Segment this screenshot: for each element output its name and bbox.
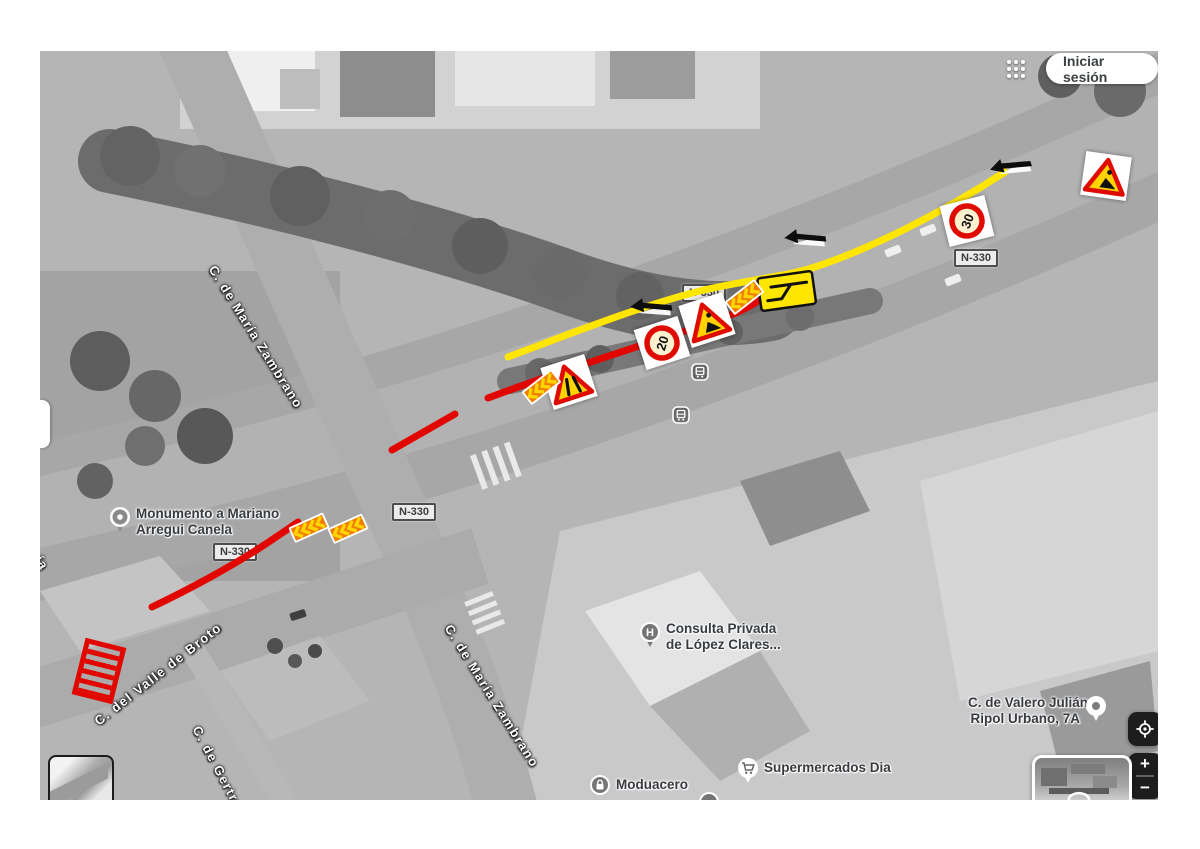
road-badge-n330-1: N-330: [954, 249, 998, 267]
poi-label-line: Consulta Privada: [666, 621, 781, 637]
poi-label-line: Ripol Urbano, 7A: [968, 711, 1080, 727]
poi-consulta-privada[interactable]: H Consulta Privadade López Clares...: [638, 621, 781, 653]
road-badge-n330-4: N-330: [213, 543, 257, 561]
street-view-thumbnail[interactable]: [1032, 755, 1132, 800]
poi-pin-partial[interactable]: [697, 791, 721, 800]
map-preview-icon: [50, 757, 108, 800]
zoom-controls: + −: [1128, 753, 1158, 799]
poi-label-line: C. de Valero Julián: [968, 695, 1080, 711]
monument-pin-icon: [108, 506, 132, 534]
roadworks-warning-sign-1: [1080, 151, 1132, 201]
zoom-in-button[interactable]: +: [1128, 753, 1158, 775]
bus-stop-icon-2[interactable]: [672, 406, 690, 429]
diversion-arrow-icon-2: [782, 223, 830, 260]
poi-label-line: de López Clares...: [666, 637, 781, 653]
road-badge-n330-3: N-330: [392, 503, 436, 521]
poi-label-line: Supermercados Dia: [764, 760, 891, 776]
my-location-button[interactable]: [1128, 712, 1158, 746]
bus-stop-icon-1[interactable]: [691, 363, 709, 386]
generic-pin-icon: [697, 791, 721, 800]
poi-label-line: Arregui Canela: [136, 522, 279, 538]
poi-supermercados-dia[interactable]: Supermercados Dia: [736, 757, 891, 785]
side-panel-toggle[interactable]: [40, 400, 50, 448]
signin-button[interactable]: Iniciar sesión: [1046, 53, 1158, 84]
maps-app-window: C. de María Zambrano C. de María Zambran…: [0, 0, 1200, 849]
my-location-icon: [1135, 719, 1155, 739]
map-type-toggle-thumbnail[interactable]: [48, 755, 114, 800]
svg-text:H: H: [646, 627, 654, 639]
address-pin-icon: [1084, 695, 1108, 723]
hospital-pin-icon: H: [638, 621, 662, 649]
map-canvas[interactable]: C. de María Zambrano C. de María Zambran…: [40, 51, 1158, 800]
lock-pin-icon: [588, 774, 612, 800]
poi-monumento[interactable]: Monumento a MarianoArregui Canela: [108, 506, 279, 538]
zoom-out-button[interactable]: −: [1128, 777, 1158, 799]
google-apps-grid-icon[interactable]: [1002, 55, 1030, 83]
poi-valero-julian[interactable]: C. de Valero JuliánRipol Urbano, 7A: [968, 695, 1108, 727]
street-view-photo: [1035, 758, 1123, 800]
poi-label-line: Moduacero: [616, 777, 688, 793]
poi-moduacero[interactable]: Moduacero: [588, 774, 688, 800]
shopping-cart-pin-icon: [736, 757, 760, 785]
poi-label-line: Monumento a Mariano: [136, 506, 279, 522]
